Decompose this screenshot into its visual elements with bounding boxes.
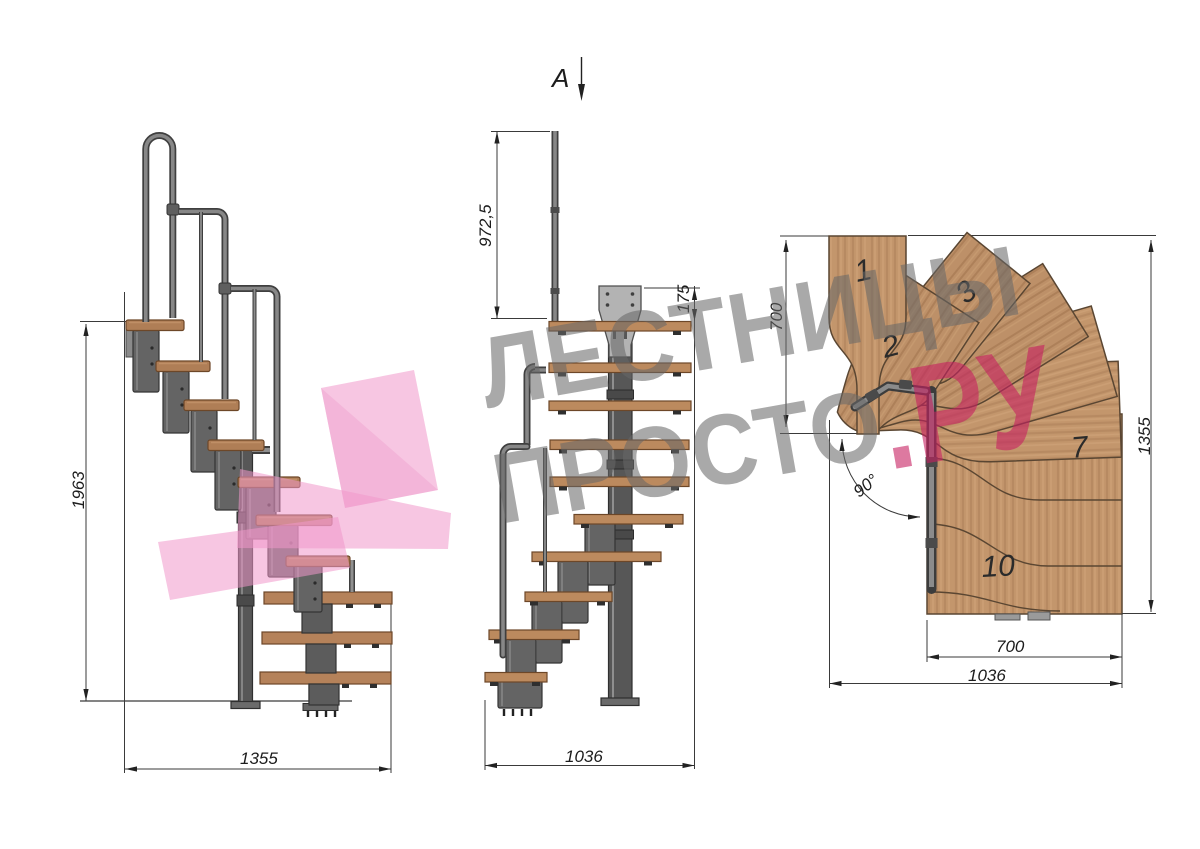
svg-text:.РУ: .РУ bbox=[867, 314, 1067, 499]
svg-text:1963: 1963 bbox=[69, 471, 88, 509]
svg-text:1036: 1036 bbox=[968, 666, 1006, 685]
svg-text:1355: 1355 bbox=[240, 749, 278, 768]
svg-text:972,5: 972,5 bbox=[476, 204, 495, 247]
svg-text:700: 700 bbox=[996, 637, 1025, 656]
svg-text:1036: 1036 bbox=[565, 747, 603, 766]
svg-text:1355: 1355 bbox=[1135, 417, 1154, 455]
svg-text:A: A bbox=[550, 63, 569, 93]
svg-text:10: 10 bbox=[981, 549, 1016, 584]
